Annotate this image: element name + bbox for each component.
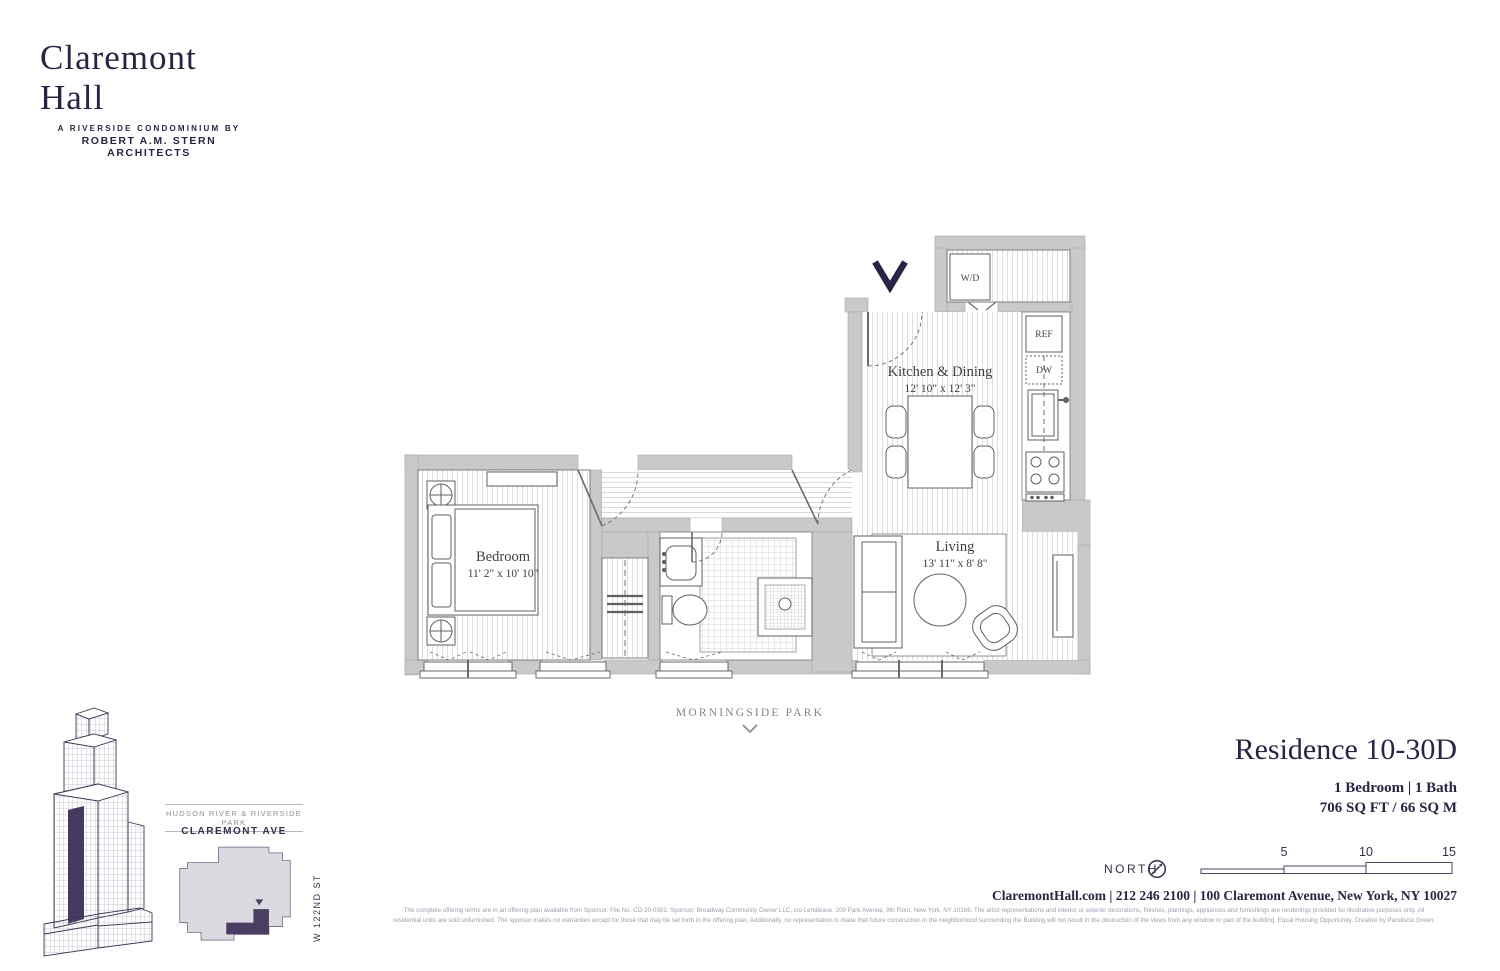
pillow xyxy=(432,563,451,607)
dining-table xyxy=(908,396,972,488)
contact-line: ClaremontHall.com | 212 246 2100 | 100 C… xyxy=(857,888,1457,904)
park-chevron-icon xyxy=(740,723,760,735)
residence-area: 706 SQ FT / 66 SQ M xyxy=(1037,800,1457,817)
residence-specs: 1 Bedroom | 1 Bath xyxy=(1037,780,1457,797)
scale-bar: 5 10 15 xyxy=(1200,846,1458,878)
building-illustration xyxy=(32,700,167,958)
entry-arrow-icon xyxy=(875,262,905,287)
dining-chair xyxy=(886,406,906,438)
street-label: W 122ND ST xyxy=(312,852,322,942)
room-dims-kitchen: 12' 10" x 12' 3" xyxy=(904,383,975,395)
legal-block: The complete offering terms are in an of… xyxy=(365,906,1463,925)
washer-dryer-label: W/D xyxy=(961,274,980,284)
pillow xyxy=(432,515,451,559)
room-label-bedroom: Bedroom xyxy=(476,549,531,565)
console xyxy=(1053,555,1073,637)
coffee-table xyxy=(914,574,966,626)
park-direction: MORNINGSIDE PARK xyxy=(650,707,850,735)
room-label-living: Living xyxy=(936,539,975,555)
refrigerator-label: REF xyxy=(1035,330,1052,340)
residence-title: Residence 10-30D xyxy=(1037,733,1457,767)
park-label: MORNINGSIDE PARK xyxy=(650,707,850,719)
dining-chair xyxy=(974,446,994,478)
room-dims-bedroom: 11' 2" x 10' 10" xyxy=(468,568,539,580)
unit-stack-highlight xyxy=(68,806,84,924)
dresser xyxy=(487,472,557,486)
toilet-bowl xyxy=(673,595,707,625)
toilet-tank xyxy=(662,596,672,624)
legal-line-1: The complete offering terms are in an of… xyxy=(365,906,1463,916)
compass-icon xyxy=(1146,858,1168,880)
dining-chair xyxy=(886,446,906,478)
scale-tick-5: 5 xyxy=(1281,846,1288,859)
room-dims-living: 13' 11" x 8' 8" xyxy=(923,558,988,570)
stove xyxy=(1026,452,1064,492)
floorplan-sheet: Claremont Hall A RIVERSIDE CONDOMINIUM B… xyxy=(0,0,1500,971)
scale-tick-15: 15 xyxy=(1442,846,1456,859)
keyplan-footprint xyxy=(172,841,298,953)
scale-tick-10: 10 xyxy=(1359,846,1373,859)
dining-chair xyxy=(974,406,994,438)
room-label-kitchen: Kitchen & Dining xyxy=(888,364,993,380)
dishwasher-label: DW xyxy=(1036,366,1052,376)
avenue-label: CLAREMONT AVE xyxy=(165,826,303,837)
shower-drain xyxy=(779,598,791,610)
legal-line-2: residential units are sold unfurnished. … xyxy=(365,916,1463,926)
